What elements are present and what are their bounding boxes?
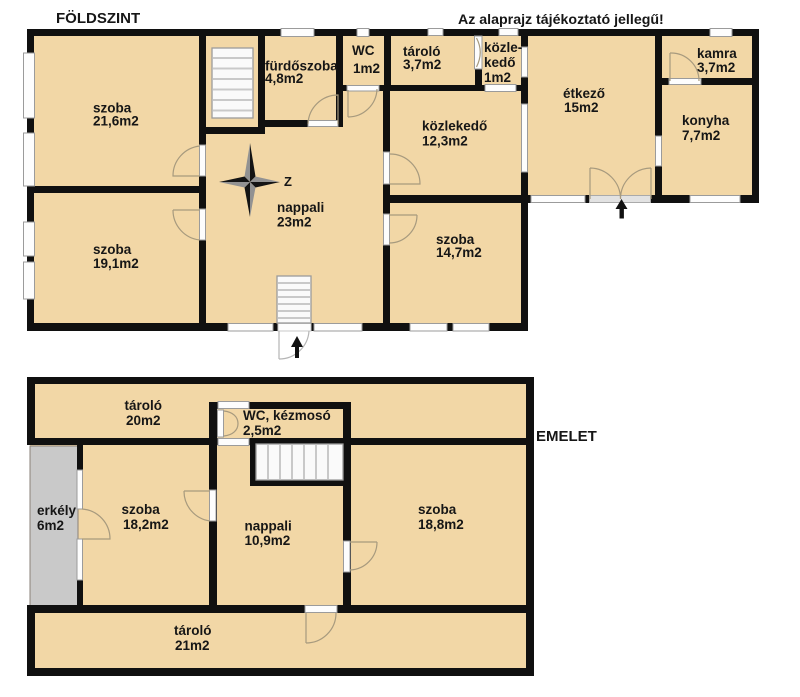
- svg-text:19,1m2: 19,1m2: [93, 256, 139, 271]
- svg-text:10,9m2: 10,9m2: [245, 533, 291, 548]
- svg-text:nappali: nappali: [245, 519, 292, 534]
- svg-text:szoba: szoba: [418, 502, 457, 517]
- svg-text:WC: WC: [352, 43, 375, 58]
- svg-text:tároló: tároló: [125, 398, 163, 413]
- svg-text:FÖLDSZINT: FÖLDSZINT: [56, 10, 140, 27]
- svg-text:15m2: 15m2: [564, 100, 599, 115]
- svg-text:szoba: szoba: [122, 502, 161, 517]
- svg-text:3,7m2: 3,7m2: [403, 57, 441, 72]
- svg-text:14,7m2: 14,7m2: [436, 245, 482, 260]
- svg-text:21,6m2: 21,6m2: [93, 114, 139, 129]
- svg-text:Az alaprajz tájékoztató jelleg: Az alaprajz tájékoztató jellegű!: [458, 12, 664, 28]
- svg-text:erkély: erkély: [37, 503, 77, 518]
- svg-text:konyha: konyha: [682, 113, 730, 128]
- svg-text:kamra: kamra: [697, 46, 737, 61]
- svg-text:23m2: 23m2: [277, 215, 312, 230]
- svg-text:4,8m2: 4,8m2: [265, 71, 303, 86]
- svg-text:tároló: tároló: [174, 623, 212, 638]
- svg-text:szoba: szoba: [93, 242, 132, 257]
- svg-text:WC, kézmosó: WC, kézmosó: [243, 408, 331, 423]
- svg-text:3,7m2: 3,7m2: [697, 60, 735, 75]
- svg-text:18,8m2: 18,8m2: [418, 517, 464, 532]
- svg-text:7,7m2: 7,7m2: [682, 128, 720, 143]
- svg-text:étkező: étkező: [563, 86, 605, 101]
- svg-text:6m2: 6m2: [37, 518, 64, 533]
- svg-text:12,3m2: 12,3m2: [422, 134, 468, 149]
- svg-text:20m2: 20m2: [126, 413, 161, 428]
- svg-text:Z: Z: [284, 174, 292, 189]
- svg-text:közle-: közle-: [484, 40, 522, 55]
- svg-text:2,5m2: 2,5m2: [243, 423, 281, 438]
- svg-text:kedő: kedő: [484, 55, 516, 70]
- svg-text:1m2: 1m2: [484, 70, 511, 85]
- svg-text:közlekedő: közlekedő: [422, 119, 487, 134]
- svg-text:18,2m2: 18,2m2: [123, 517, 169, 532]
- svg-text:21m2: 21m2: [175, 638, 210, 653]
- svg-text:EMELET: EMELET: [536, 428, 597, 445]
- svg-text:nappali: nappali: [277, 200, 324, 215]
- svg-text:1m2: 1m2: [353, 61, 380, 76]
